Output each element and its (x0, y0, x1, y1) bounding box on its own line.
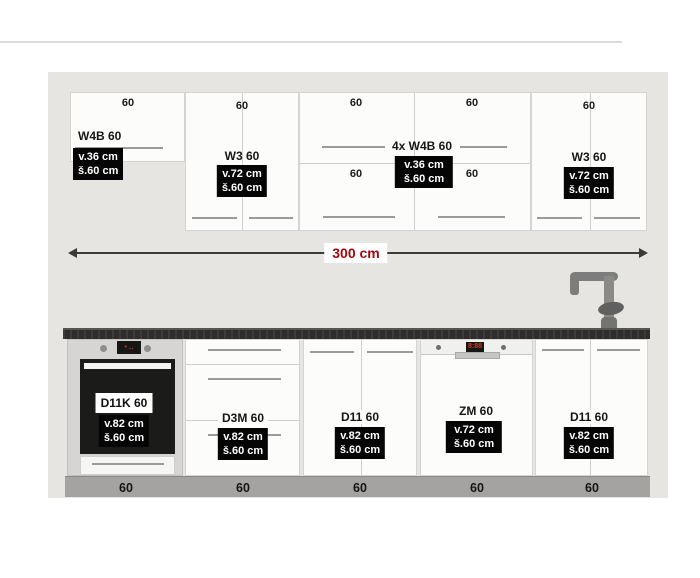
upper-cab2-width-dim: š.60 cm (222, 182, 262, 194)
lower-cab2-width-dim: š.60 cm (223, 445, 263, 457)
upper-cab2-height-dim: v.72 cm (222, 168, 262, 180)
lower-cab3-dimensions: v.82 cm š.60 cm (335, 427, 385, 459)
plinth-width-label-2: 60 (223, 481, 263, 495)
lower-cab1-width-dim: š.60 cm (104, 432, 144, 444)
upper-cab4-height-dim: v.72 cm (569, 170, 609, 182)
dishwasher-knob-left-icon (436, 345, 441, 350)
upper-cab4-handle-left (537, 217, 582, 219)
lower-cab3-code: D11 60 (337, 410, 383, 424)
total-width-label: 300 cm (324, 243, 387, 263)
d3m-drawer-divider1 (186, 364, 299, 365)
faucet-handle (597, 300, 625, 316)
upper-cab4-code: W3 60 (572, 150, 607, 164)
lower-cab5-width-dim: š.60 cm (569, 444, 609, 456)
oven-knob-right-icon (144, 345, 151, 352)
upper-cab2-handle-right (249, 217, 293, 219)
lower-cab3-handle-left (310, 351, 354, 353)
lower-cab5-dimensions: v.82 cm š.60 cm (564, 427, 614, 459)
lower-cab5-height-dim: v.82 cm (569, 430, 609, 442)
oven-display: • ‥ (117, 341, 141, 354)
countertop (63, 328, 650, 339)
oven-door-handle-bar (84, 363, 171, 369)
dimension-arrowhead-right-icon (639, 248, 648, 258)
lower-cab3-width-dim: š.60 cm (340, 444, 380, 456)
lower-cab4-code: ZM 60 (455, 404, 497, 418)
lower-cab5-handle-left (542, 349, 584, 351)
upper-cab4-dimensions: v.72 cm š.60 cm (564, 167, 614, 199)
lower-cab1-height-dim: v.82 cm (104, 418, 144, 430)
oven-knob-left-icon (100, 345, 107, 352)
plinth-width-label-5: 60 (572, 481, 612, 495)
lower-cab2-dimensions: v.82 cm š.60 cm (218, 428, 268, 460)
d3m-drawer2-handle (208, 378, 281, 380)
block-handle-top-left (322, 146, 385, 148)
lower-cab3-height-dim: v.82 cm (340, 430, 380, 442)
block-width-label-top-left: 60 (336, 97, 376, 109)
lower-cab1-dimensions: v.82 cm š.60 cm (99, 415, 149, 447)
lower-cab4-height-dim: v.72 cm (454, 424, 494, 436)
faucet-spout (570, 278, 579, 295)
dishwasher-knob-right-icon (501, 345, 506, 350)
lower-cab4-dimensions: v.72 cm š.60 cm (446, 421, 502, 453)
dishwasher-display: 8:88 (466, 342, 484, 352)
lower-cab5-handle-right (597, 349, 640, 351)
plinth-width-label-1: 60 (106, 481, 146, 495)
upper-cab1-width-dim: š.60 cm (78, 165, 118, 177)
faucet-base (601, 317, 617, 328)
block-width-label-bottom-left: 60 (336, 168, 376, 180)
lower-cab5-code: D11 60 (566, 410, 612, 424)
upper-cab1-code: W4B 60 (78, 129, 121, 143)
oven-drawer-handle-line (92, 463, 164, 465)
lower-cab3-handle-right (367, 351, 413, 353)
oven-bottom-drawer (80, 456, 175, 475)
upper-cab2-width-label: 60 (222, 100, 262, 112)
block-dimensions: v.36 cm š.60 cm (395, 156, 453, 188)
plinth-width-label-3: 60 (340, 481, 380, 495)
upper-cab1-dimensions: v.36 cm š.60 cm (73, 148, 123, 180)
upper-cab4-width-label: 60 (569, 100, 609, 112)
block-handle-bottom-left (323, 216, 395, 218)
block-width-label-top-right: 60 (452, 97, 492, 109)
block-width-label-bottom-right: 60 (452, 168, 492, 180)
dimension-arrowhead-left-icon (68, 248, 77, 258)
upper-cab4-handle-right (594, 217, 640, 219)
d3m-drawer1-handle (208, 349, 281, 351)
block-handle-bottom-right (438, 216, 505, 218)
kitchen-layout-diagram: 60 W4B 60 v.36 cm š.60 cm 60 W3 60 v.72 … (0, 0, 700, 578)
upper-cab2-dimensions: v.72 cm š.60 cm (217, 165, 267, 197)
upper-cab1-width-label: 60 (108, 97, 148, 109)
plinth-width-label-4: 60 (457, 481, 497, 495)
block-code: 4x W4B 60 (392, 139, 452, 153)
upper-cab1-height-dim: v.36 cm (78, 151, 118, 163)
upper-cab2-handle-left (192, 217, 237, 219)
block-width-dim: š.60 cm (404, 173, 444, 185)
dishwasher-recessed-handle (455, 352, 500, 359)
block-handle-top-right (460, 146, 507, 148)
upper-cab4-width-dim: š.60 cm (569, 184, 609, 196)
block-height-dim: v.36 cm (404, 159, 444, 171)
lower-cab2-height-dim: v.82 cm (223, 431, 263, 443)
lower-cab4-width-dim: š.60 cm (454, 438, 494, 450)
top-divider-line (0, 41, 622, 43)
upper-cab2-code: W3 60 (225, 149, 260, 163)
lower-cab2-code: D3M 60 (218, 411, 268, 425)
faucet-icon (565, 270, 627, 328)
lower-cab1-code: D11K 60 (96, 393, 153, 413)
